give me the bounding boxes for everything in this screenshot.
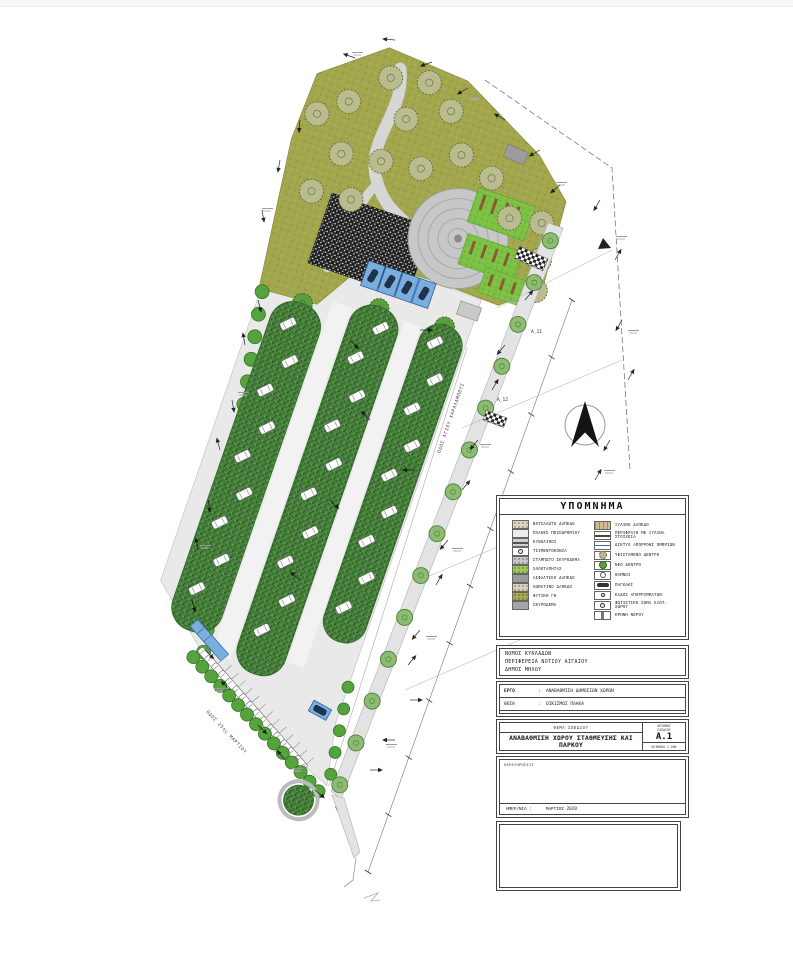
legend-item-label: ΑΣΦΑΛΤΙΚΟ ΔΑΠΕΔΟ xyxy=(533,576,575,580)
sheet-scale: ΚΛΙΜΑΚΑ 1:200 xyxy=(643,742,685,750)
legend-swatch-concrete xyxy=(512,601,529,610)
legend-item-label: ΘΑΜΝΟΙ xyxy=(615,573,631,577)
sheet-number: Α.1 xyxy=(643,732,685,742)
legend-item: ΚΑΔΟΣ ΑΠΟΡΡΙΜΜΑΤΩΝ xyxy=(594,590,676,600)
legend-swatch-extree xyxy=(594,551,611,560)
titleblock-project: ΕΡΓΟ : ΑΝΑΒΑΘΜΙΣΗ ΔΗΜΟΣΙΩΝ ΧΩΡΩΝ ΘΕΣΗ : … xyxy=(496,681,689,717)
legend-title: ΥΠΟΜΝΗΜΑ xyxy=(500,499,685,515)
legend-item: ΠΕΡΙΦΡΑΞΗ ΜΕ ΞΥΛΙΝΑ ΣΤΟΙΧΕΙΑ xyxy=(594,530,676,540)
legend-swatch-pebble xyxy=(512,520,529,529)
legend-swatch-plain xyxy=(512,529,529,538)
legend-item-label: ΤΣΙΜΕΝΤΟΚΟΝΙΑ xyxy=(533,549,567,553)
legend-item: ΣΚΥΡΟΔΕΜΑ xyxy=(512,600,594,610)
notes-label: ΠΑΡΑΤΗΡΗΣΕΙΣ xyxy=(504,763,534,767)
sheet-header: ΘΕΜΑ ΣΧΕΔΙΟΥ xyxy=(500,723,642,733)
legend-item: ΘΑΜΝΟΙ xyxy=(594,570,676,580)
legend-item-label: ΥΦΙΣΤΑΜΕΝΟ ΔΕΝΤΡΟ xyxy=(615,553,659,557)
legend-item-label: ΔΙΚΤΥΟ ΑΠΟΡΡΟΗΣ ΟΜΒΡΙΩΝ xyxy=(615,543,675,547)
titleblock-notes: ΠΑΡΑΤΗΡΗΣΕΙΣ ΗΜΕΡ/ΝΙΑ : ΜΑΡΤΙΟΣ 2020 xyxy=(496,756,689,818)
legend-item-label: ΠΑΓΚΑΚΙ xyxy=(615,583,633,587)
legend-item: ΞΥΛΙΝΟ ΔΑΠΕΔΟ xyxy=(594,520,676,530)
legend-swatch-wood xyxy=(594,521,611,530)
designer-label: ΜΕΛΕΤΗΤΗΣ : xyxy=(504,713,527,715)
legend-swatch-earth xyxy=(512,583,529,592)
legend-item: ΚΡΗΝΗ ΝΕΡΟΥ xyxy=(594,610,676,620)
tail-arrow-glyph xyxy=(364,893,380,901)
legend-item-label: ΚΡΗΝΗ ΝΕΡΟΥ xyxy=(615,613,644,617)
legend-item-label: ΧΛΟΟΤΑΠΗΤΑΣ xyxy=(533,567,562,571)
municipality-line-2: ΠΕΡΙΦΕΡΕΙΑ ΝΟΤΙΟΥ ΑΙΓΑΙΟΥ xyxy=(505,659,680,667)
legend-item-label: ΝΕΟ ΔΕΝΤΡΟ xyxy=(615,563,641,567)
legend-swatch-stamped xyxy=(512,556,529,565)
titleblock-municipality: ΝΟΜΟΣ ΚΥΚΛΑΔΩΝ ΠΕΡΙΦΕΡΕΙΑ ΝΟΤΙΟΥ ΑΙΓΑΙΟΥ… xyxy=(496,645,689,679)
legend-item-label: ΣΤΑΜΠΩΤΟ ΣΚΥΡΟΔΕΜΑ xyxy=(533,558,580,562)
legend-item-label: ΞΥΛΙΝΟ ΔΑΠΕΔΟ xyxy=(615,523,649,527)
location-colon: : xyxy=(538,702,546,707)
north-arrow xyxy=(565,401,605,447)
legend-swatch-grass xyxy=(512,565,529,574)
legend-item-label: ΚΥΒΟΛΙΘΟΙ xyxy=(533,540,556,544)
legend-swatch-soil xyxy=(512,592,529,601)
titleblock-empty-panel xyxy=(496,821,681,891)
legend-column-left: ΒΟΤΣΑΛΩΤΟ ΔΑΠΕΔΟΠΛΑΚΕΣ ΠΕΖΟΔΡΟΜΙΟΥΚΥΒΟΛΙ… xyxy=(512,520,594,620)
legend-swatch-fountain xyxy=(594,611,611,620)
legend-swatch-newtree xyxy=(594,561,611,570)
project-colon: : xyxy=(538,689,546,694)
legend-columns: ΒΟΤΣΑΛΩΤΟ ΔΑΠΕΔΟΠΛΑΚΕΣ ΠΕΖΟΔΡΟΜΙΟΥΚΥΒΟΛΙ… xyxy=(500,515,685,622)
legend-item-label: ΦΩΤΙΣΤΙΚΟ ΣΩΜΑ ΕΞΩΤ. ΧΩΡΟΥ xyxy=(615,601,676,609)
drawing-sheet: ΟΔΟΣ ΑΓΙΟΥ ΧΑΡΑΛΑΜΠΟΥΣ ΟΔΟΣ 25ης ΜΑΡΤΙΟΥ… xyxy=(0,0,793,955)
legend-column-right: ΞΥΛΙΝΟ ΔΑΠΕΔΟΠΕΡΙΦΡΑΞΗ ΜΕ ΞΥΛΙΝΑ ΣΤΟΙΧΕΙ… xyxy=(594,520,676,620)
location-value: ΟΙΚΙΣΜΟΣ ΠΛΑΚΑ xyxy=(546,702,584,707)
date-value: ΜΑΡΤΙΟΣ 2020 xyxy=(546,807,577,812)
section-marker-a11: Α_11 xyxy=(531,329,542,335)
legend-swatch-shrub xyxy=(594,571,611,580)
location-label: ΘΕΣΗ xyxy=(504,702,538,707)
date-label: ΗΜΕΡ/ΝΙΑ : xyxy=(506,807,532,812)
date-row: ΗΜΕΡ/ΝΙΑ : ΜΑΡΤΙΟΣ 2020 xyxy=(500,803,685,814)
titleblock-sheet: ΘΕΜΑ ΣΧΕΔΙΟΥ ΑΝΑΒΑΘΜΙΣΗ ΧΩΡΟΥ ΣΤΑΘΜΕΥΣΗΣ… xyxy=(496,719,689,754)
legend-item-label: ΠΛΑΚΕΣ ΠΕΖΟΔΡΟΜΙΟΥ xyxy=(533,531,580,535)
sheet-title: ΑΝΑΒΑΘΜΙΣΗ ΧΩΡΟΥ ΣΤΑΘΜΕΥΣΗΣ ΚΑΙ ΠΑΡΚΟΥ xyxy=(500,733,642,750)
legend-item-label: ΒΟΤΣΑΛΩΤΟ ΔΑΠΕΔΟ xyxy=(533,522,575,526)
legend-swatch-drain xyxy=(594,541,611,550)
sheet-number-label: ΑΡΙΘΜΟΣ ΣΧΕΔΙΟΥ xyxy=(643,723,685,732)
legend-item: ΝΕΟ ΔΕΝΤΡΟ xyxy=(594,560,676,570)
municipality-line-1: ΝΟΜΟΣ ΚΥΚΛΑΔΩΝ xyxy=(505,651,680,659)
legend-swatch-asphalt xyxy=(512,574,529,583)
project-value: ΑΝΑΒΑΘΜΙΣΗ ΔΗΜΟΣΙΩΝ ΧΩΡΩΝ xyxy=(546,689,614,694)
sidewalk-tail xyxy=(332,795,360,858)
legend-swatch-fence xyxy=(594,531,611,540)
legend-item-label: ΠΕΡΙΦΡΑΞΗ ΜΕ ΞΥΛΙΝΑ ΣΤΟΙΧΕΙΑ xyxy=(615,531,676,539)
legend-swatch-bin xyxy=(594,591,611,600)
legend-item: ΥΦΙΣΤΑΜΕΝΟ ΔΕΝΤΡΟ xyxy=(594,550,676,560)
section-marker-a12: Α_12 xyxy=(497,397,508,403)
legend-item-label: ΣΚΥΡΟΔΕΜΑ xyxy=(533,603,556,607)
legend-item-label: ΚΑΔΟΣ ΑΠΟΡΡΙΜΜΑΤΩΝ xyxy=(615,593,662,597)
municipality-line-3: ΔΗΜΟΣ ΜΗΛΟΥ xyxy=(505,667,680,675)
legend-item-label: ΧΩΜΑΤΙΝΟ ΔΑΠΕΔΟ xyxy=(533,585,572,589)
legend-swatch-cobble xyxy=(512,538,529,547)
legend-swatch-bench xyxy=(594,581,611,590)
legend-swatch-light xyxy=(512,547,529,556)
legend-item-label: ΦΥΤΙΚΗ ΓΗ xyxy=(533,594,556,598)
boundary-end-line xyxy=(344,858,356,887)
project-label: ΕΡΓΟ xyxy=(504,689,538,694)
legend-item: ΔΙΚΤΥΟ ΑΠΟΡΡΟΗΣ ΟΜΒΡΙΩΝ xyxy=(594,540,676,550)
legend-box: ΥΠΟΜΝΗΜΑ ΒΟΤΣΑΛΩΤΟ ΔΑΠΕΔΟΠΛΑΚΕΣ ΠΕΖΟΔΡΟΜ… xyxy=(496,495,689,640)
legend-swatch-light xyxy=(594,601,611,610)
legend-item: ΠΑΓΚΑΚΙ xyxy=(594,580,676,590)
legend-item: ΦΩΤΙΣΤΙΚΟ ΣΩΜΑ ΕΞΩΤ. ΧΩΡΟΥ xyxy=(594,600,676,610)
